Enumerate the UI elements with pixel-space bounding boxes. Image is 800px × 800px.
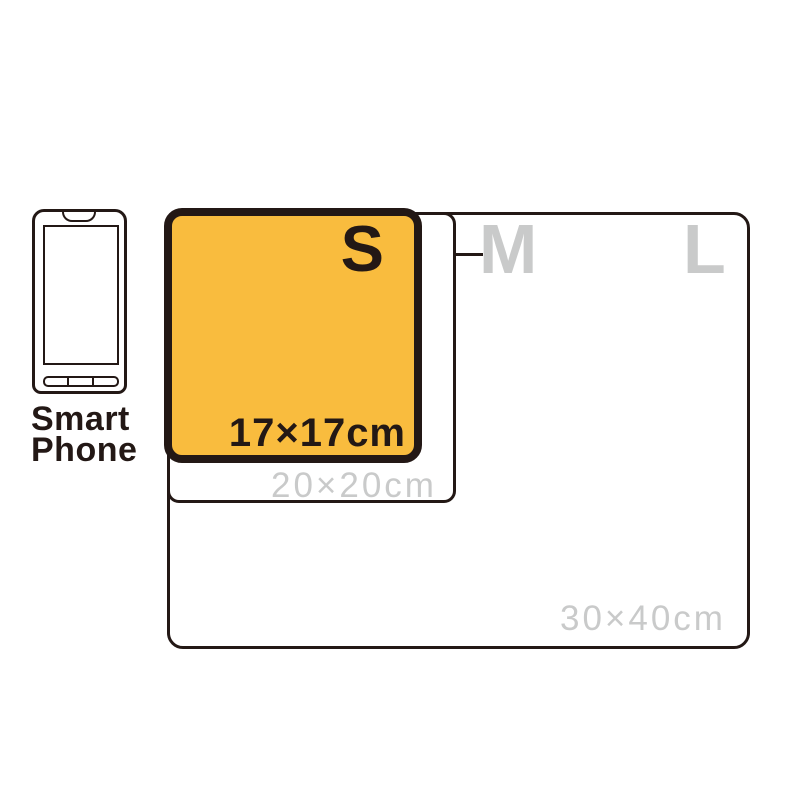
- phone-button-divider: [67, 378, 69, 385]
- size-s-rect: S 17×17cm: [164, 208, 422, 463]
- smartphone-icon: [32, 209, 127, 394]
- size-s-dimensions: 17×17cm: [229, 413, 406, 453]
- size-m-dimensions: 20×20cm: [271, 468, 437, 503]
- phone-screen: [43, 225, 119, 365]
- size-l-label: L: [683, 214, 726, 284]
- smartphone-label: SmartPhone: [31, 404, 137, 466]
- smartphone-label-line2: Phone: [31, 431, 137, 469]
- size-s-label: S: [341, 216, 384, 281]
- size-l-dimensions: 30×40cm: [560, 601, 726, 636]
- phone-buttons-bar: [43, 376, 119, 387]
- phone-speaker-notch-icon: [62, 212, 96, 222]
- size-m-label: M: [479, 214, 537, 284]
- phone-button-divider: [92, 378, 94, 385]
- size-comparison-diagram: SmartPhone M L 20×20cm 30×40cm S 17×17cm: [0, 0, 800, 800]
